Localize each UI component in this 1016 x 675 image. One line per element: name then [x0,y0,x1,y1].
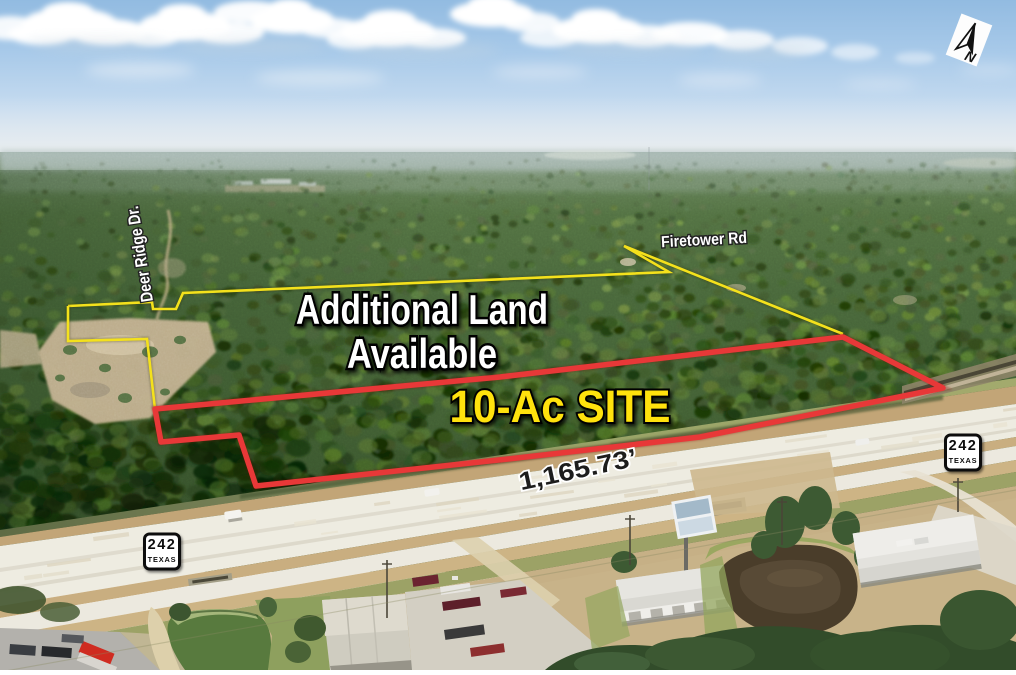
svg-text:TEXAS: TEXAS [949,456,978,465]
svg-text:242: 242 [949,438,978,454]
svg-text:TEXAS: TEXAS [148,555,177,564]
svg-text:Available: Available [347,330,497,377]
svg-text:242: 242 [148,537,177,553]
svg-text:Additional Land: Additional Land [296,286,548,333]
svg-text:10-Ac SITE: 10-Ac SITE [450,381,671,432]
